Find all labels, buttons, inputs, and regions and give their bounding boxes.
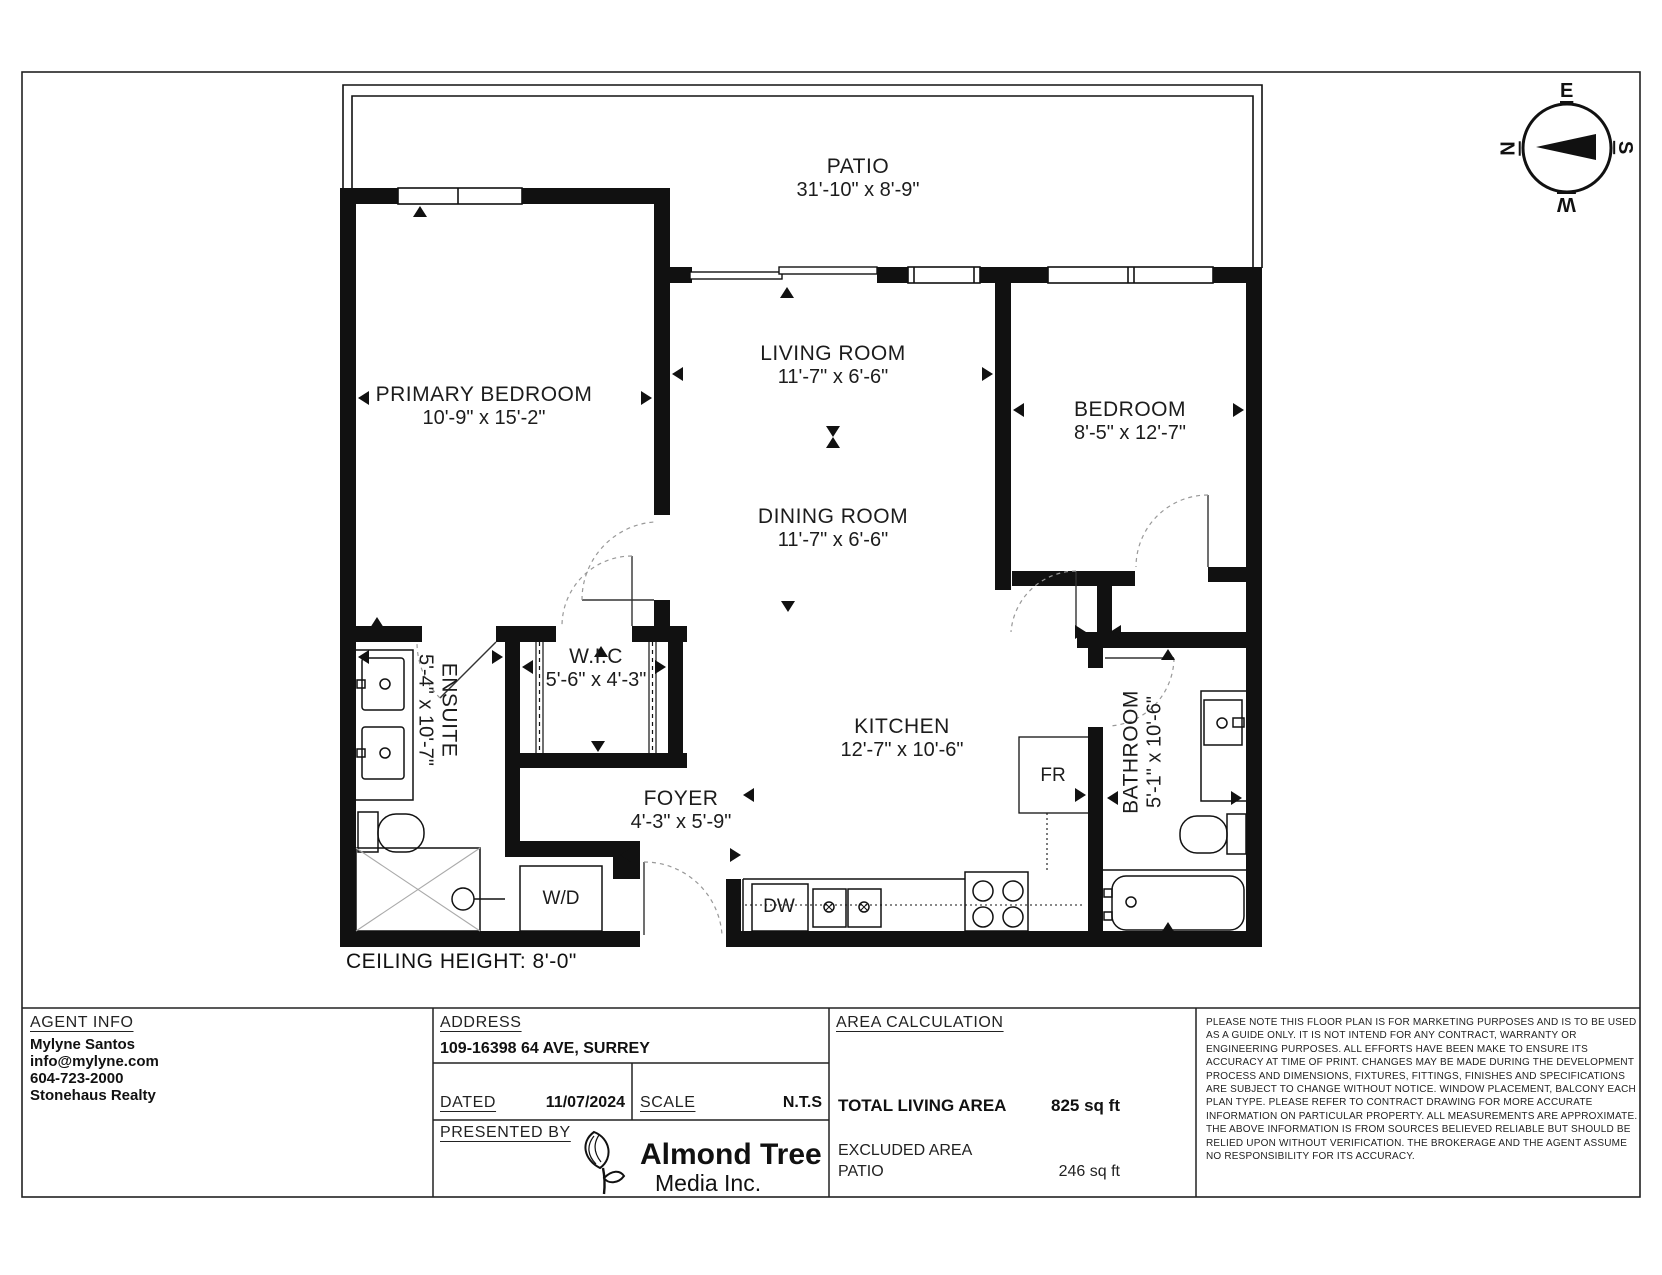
agent-phone: 604-723-2000	[30, 1070, 159, 1087]
room-name: KITCHEN	[840, 715, 963, 739]
presented-by-label: PRESENTED BY	[440, 1124, 571, 1142]
room-dims: 5'-4" x 10'-7"	[414, 654, 437, 766]
room-label-wic: W.I.C 5'-6" x 4'-3"	[546, 645, 647, 692]
room-label-primary-bedroom: PRIMARY BEDROOM 10'-9" x 15'-2"	[376, 383, 593, 430]
room-label-bedroom: BEDROOM 8'-5" x 12'-7"	[1074, 398, 1186, 445]
dated-label: DATED	[440, 1094, 496, 1112]
room-name: PATIO	[796, 155, 919, 179]
washer-dryer-label: W/D	[543, 888, 580, 910]
agent-info-block: Mylyne Santos info@mylyne.com 604-723-20…	[30, 1036, 159, 1104]
room-name: BEDROOM	[1074, 398, 1186, 422]
logo-company-sub: Media Inc.	[655, 1170, 761, 1197]
dishwasher-label: DW	[763, 896, 795, 918]
total-living-area-value: 825 sq ft	[1000, 1096, 1120, 1116]
room-name: W.I.C	[546, 645, 647, 669]
compass-west: W	[1557, 192, 1576, 215]
room-label-foyer: FOYER 4'-3" x 5'-9"	[631, 787, 732, 834]
floorplan-page: { "plan": { "ceiling_note": "CEILING HEI…	[0, 0, 1662, 1275]
room-name: PRIMARY BEDROOM	[376, 383, 593, 407]
room-label-dining-room: DINING ROOM 11'-7" x 6'-6"	[758, 505, 908, 552]
agent-brokerage: Stonehaus Realty	[30, 1087, 159, 1104]
excluded-area-room: PATIO	[838, 1163, 884, 1181]
scale-value: N.T.S	[702, 1094, 822, 1112]
room-name: FOYER	[631, 787, 732, 811]
room-dims: 8'-5" x 12'-7"	[1074, 422, 1186, 445]
compass-south: S	[1613, 141, 1636, 154]
room-dims: 4'-3" x 5'-9"	[631, 811, 732, 834]
agent-info-heading: AGENT INFO	[30, 1014, 134, 1032]
agent-email: info@mylyne.com	[30, 1053, 159, 1070]
address-value: 109-16398 64 AVE, SURREY	[440, 1040, 650, 1058]
logo-company-name: Almond Tree	[640, 1138, 822, 1172]
patio-label: PATIO 31'-10" x 8'-9"	[796, 155, 919, 202]
room-label-ensuite: ENSUITE 5'-4" x 10'-7"	[414, 654, 461, 766]
room-label-bathroom: BATHROOM 5'-1" x 10'-6"	[1120, 690, 1167, 814]
room-label-living-room: LIVING ROOM 11'-7" x 6'-6"	[760, 342, 906, 389]
room-dims: 12'-7" x 10'-6"	[840, 739, 963, 762]
dimension-arrows	[358, 206, 1244, 933]
disclaimer-text: PLEASE NOTE THIS FLOOR PLAN IS FOR MARKE…	[1206, 1016, 1638, 1163]
walls	[340, 188, 1262, 947]
room-name: DINING ROOM	[758, 505, 908, 529]
room-dims: 11'-7" x 6'-6"	[758, 529, 908, 552]
fridge-label: FR	[1040, 765, 1065, 787]
room-dims: 5'-6" x 4'-3"	[546, 669, 647, 692]
ceiling-height-note: CEILING HEIGHT: 8'-0"	[346, 950, 577, 974]
scale-label: SCALE	[640, 1094, 695, 1112]
total-living-area-label: TOTAL LIVING AREA	[838, 1096, 1006, 1116]
compass-east: E	[1560, 80, 1573, 103]
excluded-area-label: EXCLUDED AREA	[838, 1142, 972, 1160]
excluded-area-value: 246 sq ft	[1000, 1163, 1120, 1181]
room-dims: 10'-9" x 15'-2"	[376, 407, 593, 430]
room-name: BATHROOM	[1120, 690, 1144, 814]
room-dims: 31'-10" x 8'-9"	[796, 179, 919, 202]
agent-name: Mylyne Santos	[30, 1036, 159, 1053]
room-dims: 5'-1" x 10'-6"	[1144, 690, 1167, 814]
compass-north: N	[1498, 141, 1521, 155]
room-dims: 11'-7" x 6'-6"	[760, 366, 906, 389]
address-heading: ADDRESS	[440, 1014, 522, 1032]
room-name: ENSUITE	[437, 654, 461, 766]
compass-icon	[1523, 104, 1611, 192]
dated-value: 11/07/2024	[505, 1094, 625, 1112]
room-label-kitchen: KITCHEN 12'-7" x 10'-6"	[840, 715, 963, 762]
area-calculation-heading: AREA CALCULATION	[836, 1014, 1004, 1032]
sliding-door	[690, 267, 877, 279]
room-name: LIVING ROOM	[760, 342, 906, 366]
almond-tree-logo-icon	[585, 1132, 624, 1194]
